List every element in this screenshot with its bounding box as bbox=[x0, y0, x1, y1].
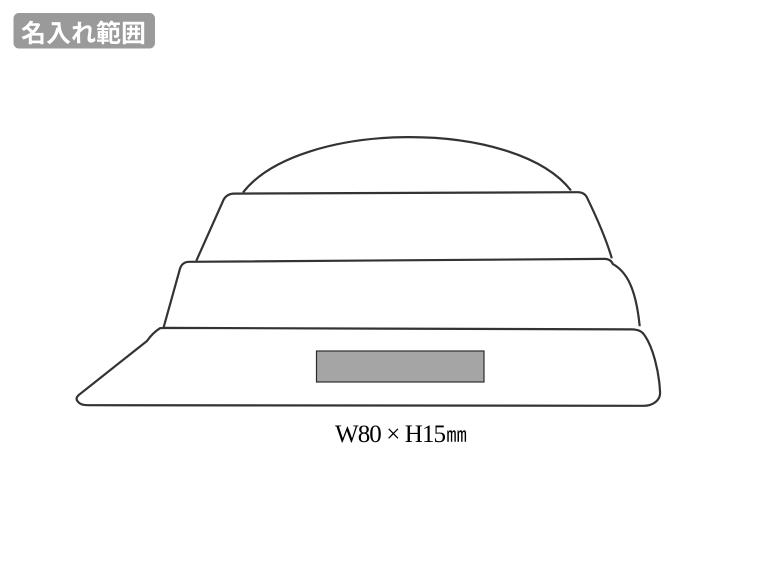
svg-text:W80 × H15: W80 × H15 bbox=[335, 421, 446, 448]
